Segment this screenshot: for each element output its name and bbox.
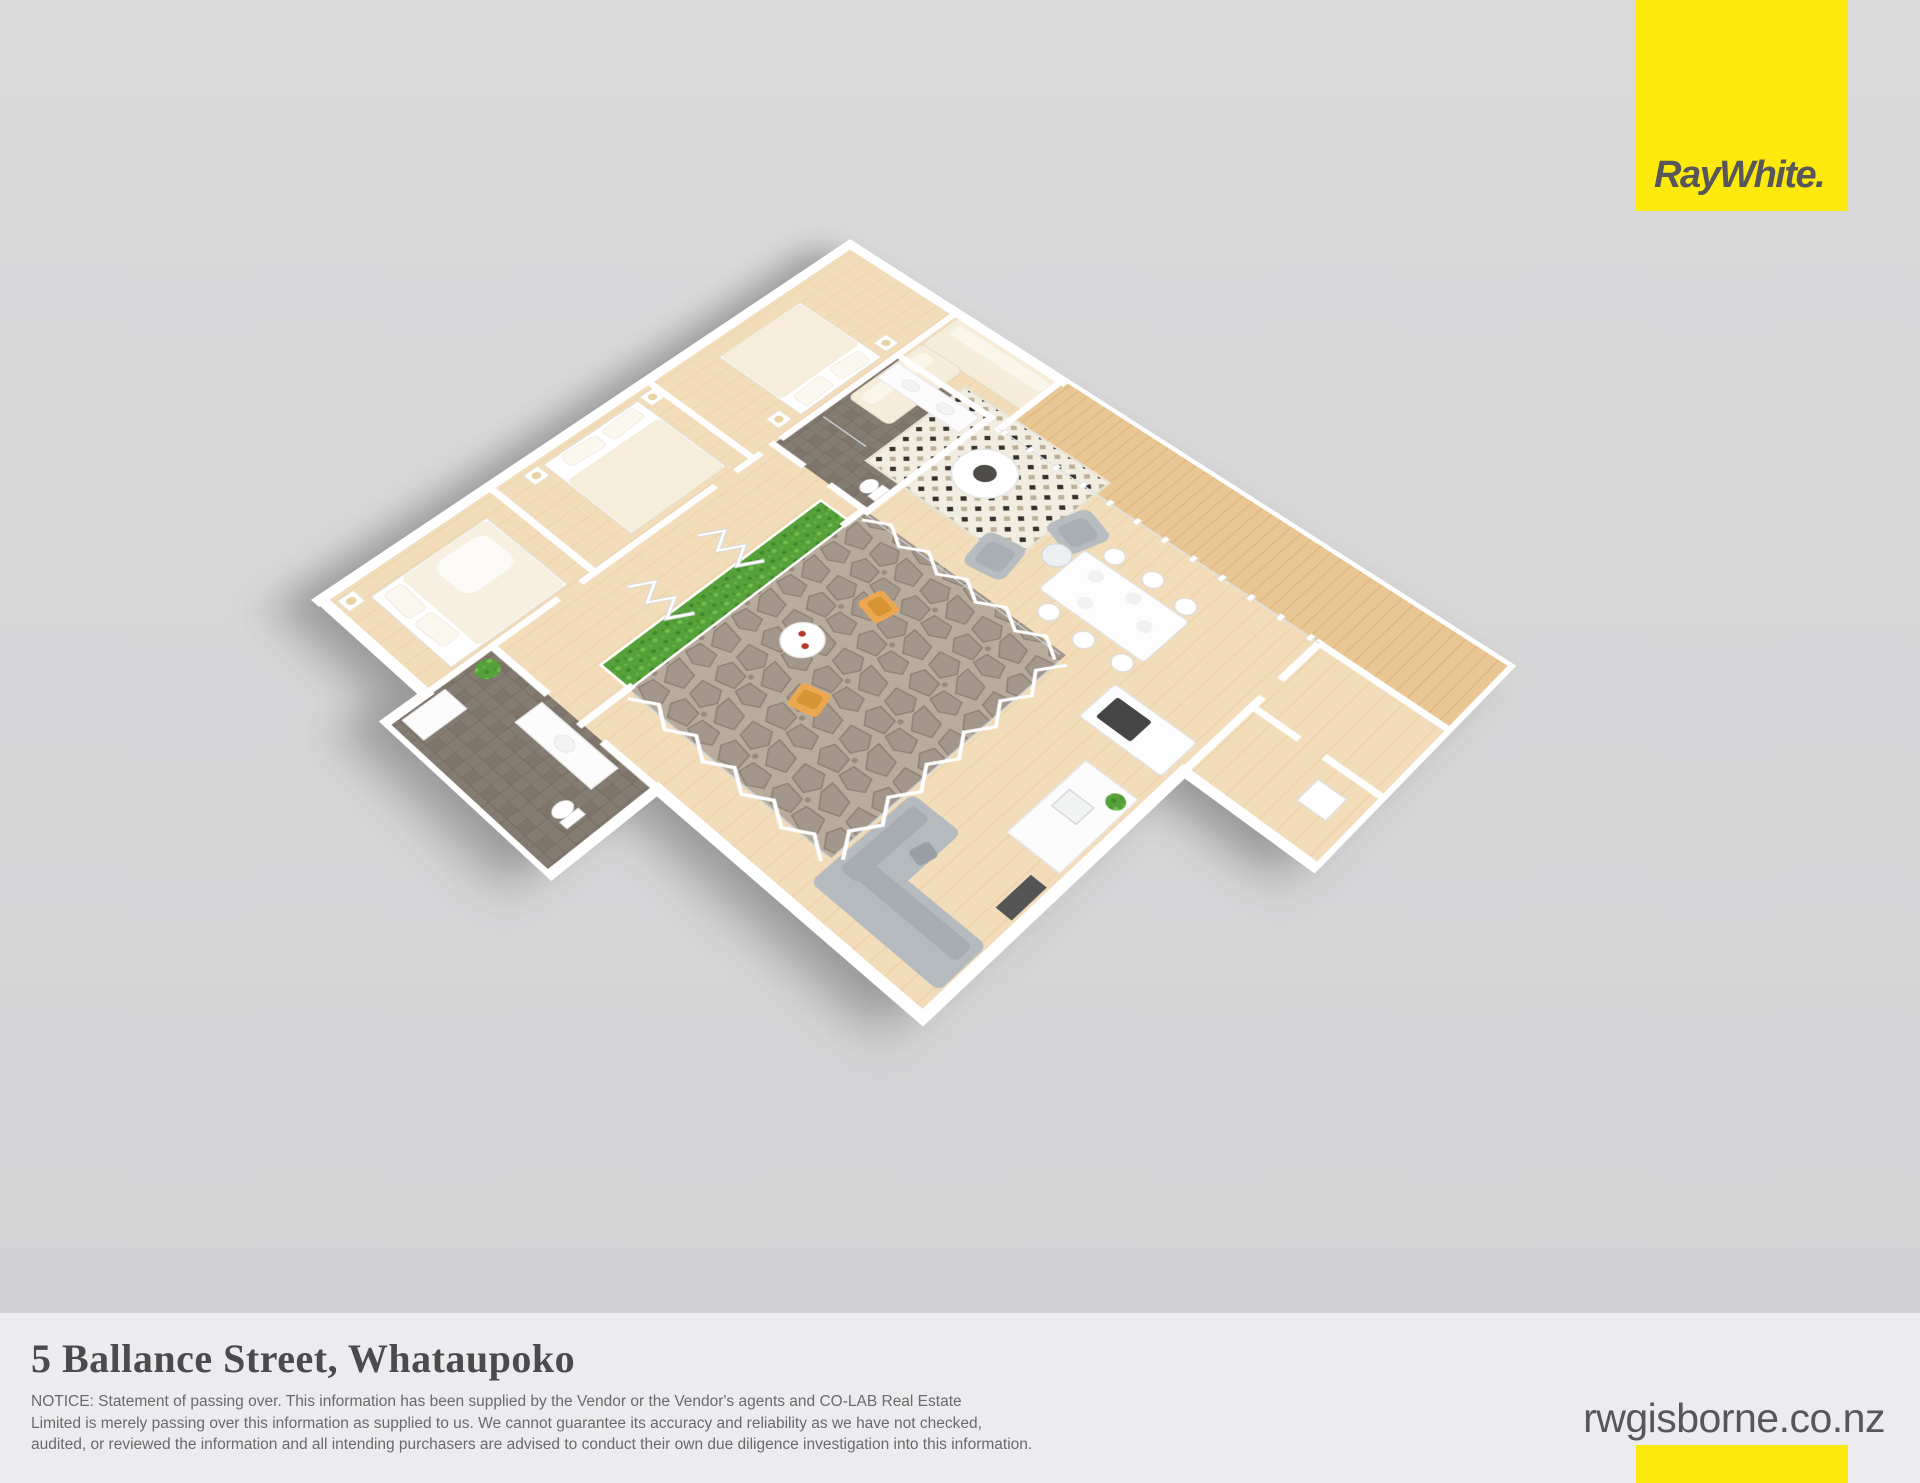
footer: 5 Ballance Street, Whataupoko NOTICE: St…	[0, 1313, 1920, 1483]
notice-line: audited, or reviewed the information and…	[31, 1436, 1032, 1453]
property-address-title: 5 Ballance Street, Whataupoko	[31, 1335, 575, 1382]
brand-yellow-block-top: RayWhite.	[1636, 0, 1848, 211]
raywhite-logo: RayWhite.	[1636, 154, 1824, 211]
disclaimer-notice: NOTICE: Statement of passing over. This …	[31, 1391, 1032, 1456]
notice-line: NOTICE: Statement of passing over. This …	[31, 1393, 962, 1410]
floor-plan-svg	[274, 239, 1516, 1249]
brand-yellow-block-bottom	[1636, 1445, 1848, 1483]
agency-website: rwgisborne.co.nz	[1583, 1395, 1885, 1442]
floor-plan-3d	[274, 239, 1516, 1249]
notice-line: Limited is merely passing over this info…	[31, 1415, 982, 1432]
